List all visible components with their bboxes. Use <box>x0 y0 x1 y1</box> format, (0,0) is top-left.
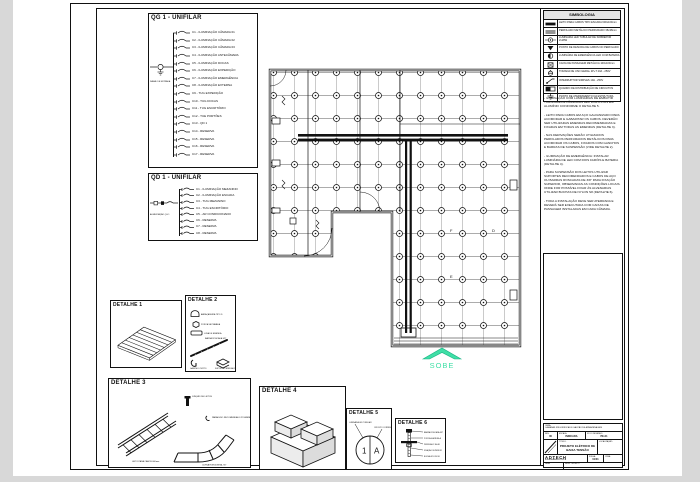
luminaire-icon <box>544 36 558 43</box>
note-paragraph: - LEITO PARA CABOS EM AÇO GALVANIZADO PA… <box>544 113 621 129</box>
qg1-single-line-diagram: QG 1 - UNIFILAR C1 - ILUMINAÇÃO CÂMARA 0… <box>148 13 258 168</box>
circuit-label: C4 - ILUMINAÇÃO ANTECÂMARA <box>192 54 239 57</box>
circuit-label: C5 - ILUMINAÇÃO DOCAS <box>192 62 229 65</box>
detail-3-title: DETALHE 3 <box>109 379 250 386</box>
breaker-row: C8 - ILUMINAÇÃO EXTERNA <box>173 82 239 90</box>
breaker-icon <box>173 44 191 51</box>
circuit-label: C1 - ILUMINAÇÃO MEZANINO <box>196 188 238 191</box>
breaker-row: C2 - ILUMINAÇÃO CÂMARA 02 <box>173 37 239 45</box>
note-paragraph: - NAS DERIVAÇÕES SERÃO UTILIZADOS PERFIL… <box>544 133 621 149</box>
breaker-icon <box>173 37 191 44</box>
detail-2-box: DETALHE 2 ABRAÇADEIRA TIPO D PORCA SEXTA… <box>185 295 236 372</box>
hardware-parts-icon: ABRAÇADEIRA TIPO D PORCA SEXTAVADA LUVA … <box>187 304 235 370</box>
breaker-icon <box>173 90 191 97</box>
curve-section-icon <box>174 435 234 462</box>
breaker-icon <box>179 211 195 217</box>
switch-icon <box>544 77 558 84</box>
breaker-icon <box>173 52 191 59</box>
feeder-label: ALIMENTAÇÃO QG 1 <box>150 214 178 216</box>
legend-table: SIMBOLOGIA LEITO PARA CABOS TIPO ESCADA … <box>543 10 621 102</box>
cable-ladder-isometric-icon: JUNÇÃO DE LEITOS PARAFUSO RECOMENDADO P/… <box>110 388 250 466</box>
part-label: LUVA DE EMENDA <box>204 332 222 335</box>
breaker-icon <box>179 218 195 224</box>
detail-label: CURVA HORIZONTAL 90° <box>202 464 227 467</box>
breaker-icon <box>173 113 191 120</box>
circuit-label: C2 - ILUMINAÇÃO CÂMARA 02 <box>192 39 235 42</box>
breaker-row: C4 - ILUMINAÇÃO ANTECÂMARA <box>173 52 239 60</box>
circuit-label: C13 - QD 1 <box>192 122 207 125</box>
legend-row: LUMINÁRIA LED TUBULAR DE SOBREPOR 2x18W <box>544 36 620 44</box>
detail-label: PORCA E ARRUELA <box>424 437 442 440</box>
breaker-icon <box>179 224 195 230</box>
luminaire-tag-detail-icon: LUMINÁRIA LED TUBULAR CIRCUITO CORRESPON… <box>348 417 392 469</box>
tray-panel-isometric-icon <box>111 311 181 367</box>
breaker-row: C17 - RESERVA <box>173 151 239 159</box>
logo-slash-icon <box>544 440 557 454</box>
general-notes: - ILUMINAÇÃO COM LUMINÁRIAS DE EMBUTIR T… <box>544 96 621 215</box>
room-tag: E <box>450 274 453 279</box>
breaker-row: C15 - RESERVA <box>173 135 239 143</box>
circuit-label: C12 - TUE PORTÕES <box>192 115 222 118</box>
qg1-title: QG 1 - UNIFILAR <box>149 14 257 21</box>
floor-plan: F D E SOBE <box>260 60 530 372</box>
sheet-title: PROJETO ELÉTRICO DE BAIXA TENSÃO <box>559 443 596 453</box>
pdf-viewer-canvas[interactable]: QG 1 - UNIFILAR C1 - ILUMINAÇÃO CÂMARA 0… <box>0 0 700 482</box>
feeder-icon <box>150 62 173 76</box>
hook-icon <box>206 416 210 421</box>
detail-label: JUNÇÃO DE LEITOS <box>192 395 213 398</box>
qg1-feeder: RAMAL DE ENTRADA <box>150 62 173 83</box>
breaker-icon <box>173 105 191 112</box>
company-logo-sub: ENGENHARIA ELÉTRICA <box>545 460 586 462</box>
part-label: SUPORTE PERFILADO <box>215 367 235 370</box>
legend-row: TOMADA DE USO GERAL 2P+T 20A - 250V <box>544 69 620 77</box>
qd1-single-line-diagram: QD 1 - UNIFILAR C1 - ILUMINAÇÃO MEZANINO <box>148 173 258 241</box>
detail-label: LUMINÁRIA LED TUBULAR <box>349 421 372 424</box>
circuit-label: C11 - TUG ESCRITÓRIO <box>192 107 226 110</box>
detail-6-title: DETALHE 6 <box>396 419 445 426</box>
circuit-label: C14 - RESERVA <box>192 130 214 133</box>
breaker-icon <box>173 75 191 82</box>
circuit-label: C6 - RESERVA <box>196 219 217 222</box>
circuit-label: C5 - AR CONDICIONADO <box>196 213 231 216</box>
detail-5-box: DETALHE 5 LUMINÁRIA LED TUBULAR CIRCUITO… <box>346 408 392 470</box>
circuit-label: C7 - RESERVA <box>196 225 217 228</box>
panel-icon <box>544 86 558 93</box>
circuit-label: C16 - RESERVA <box>192 145 214 148</box>
note-paragraph: - ILUMINAÇÃO COM LUMINÁRIAS DE EMBUTIR T… <box>544 96 621 108</box>
legend-row: LEITO PARA CABOS TIPO ESCADA 600x100mm <box>544 20 620 28</box>
local-label: LOCALIZAÇÃO: <box>599 441 621 443</box>
breaker-icon <box>173 136 191 143</box>
breaker-row: C9 - TUG EXPEDIÇÃO <box>173 90 239 98</box>
circuit-label: C9 - TUG EXPEDIÇÃO <box>192 92 223 95</box>
breaker-row: C12 - TUE PORTÕES <box>173 113 239 121</box>
perfilado-line-icon <box>544 28 558 35</box>
legend-row: QUADRO DE DISTRIBUIÇÃO DE CIRCUITOS <box>544 86 620 94</box>
detail-1-box: DETALHE 1 <box>110 300 182 368</box>
legend-title: SIMBOLOGIA <box>544 11 620 20</box>
resp-label: RESP. TÉCNICO <box>565 463 621 465</box>
plan-area <box>270 70 520 346</box>
circuit-label: C8 - RESERVA <box>196 232 217 235</box>
breaker-icon <box>173 128 191 135</box>
stair-arrow: SOBE <box>423 348 461 370</box>
breaker-row: C10 - TUG DOCAS <box>173 97 239 105</box>
breaker-icon <box>173 29 191 36</box>
breaker-icon <box>173 98 191 105</box>
circuit-label: C17 - RESERVA <box>192 153 214 156</box>
emergency-luminaire-icon <box>544 53 558 60</box>
crea-label: CREA <box>605 456 621 458</box>
outlet-icon <box>544 69 558 76</box>
breaker-icon <box>179 192 195 198</box>
right-column-divider <box>540 8 541 466</box>
detail-label: CIRCUITO CORRESPONDENTE <box>374 427 392 429</box>
circuit-label: C3 - TUG MEZANINO <box>196 200 225 203</box>
feeder-label: RAMAL DE ENTRADA <box>150 81 173 83</box>
cable-tray-line-icon <box>544 20 558 27</box>
detail-6-box: DETALHE 6 BARRA ROSCADA 3/8" PORCA E ARR… <box>395 418 446 463</box>
detail-5-title: DETALHE 5 <box>347 409 391 416</box>
note-paragraph: - PARA SUSPENSÃO DOS LEITOS UTILIZAR SUP… <box>544 170 621 194</box>
qd1-feeder: ALIMENTAÇÃO QG 1 <box>150 196 178 216</box>
detail-4-title: DETALHE 4 <box>260 387 345 394</box>
legend-row: LUMINÁRIA DE EMERGÊNCIA LED COM BATERIA <box>544 53 620 61</box>
detail-4-box: DETALHE 4 <box>259 386 346 470</box>
qd1-title: QD 1 - UNIFILAR <box>149 174 257 181</box>
legend-row: INTERRUPTOR SIMPLES 10A - 250V <box>544 77 620 85</box>
breaker-row: C14 - RESERVA <box>173 128 239 136</box>
circuit-label: C7 - ILUMINAÇÃO EMERGÊNCIA <box>192 77 238 80</box>
type-mark: A <box>374 447 380 456</box>
escala-value: INDICADA <box>559 435 584 438</box>
rev-value: 00 <box>545 435 556 438</box>
detail-label: PERFILADO 38x38 <box>424 443 440 446</box>
room-tag: D <box>492 228 495 233</box>
breaker-icon <box>179 186 195 192</box>
breaker-row: C8 - RESERVA <box>179 230 238 236</box>
circuit-label: C3 - ILUMINAÇÃO CÂMARA 03 <box>192 46 235 49</box>
breaker-icon <box>173 67 191 74</box>
breaker-icon <box>173 143 191 150</box>
folha-value: 01/01 <box>589 458 602 461</box>
part-label: GANCHO CURTO <box>190 367 207 370</box>
note-paragraph: - ILUMINAÇÃO DE EMERGÊNCIA: INSTALAR LUM… <box>544 154 621 166</box>
data-label: DATA <box>545 463 562 465</box>
sobe-arrow-icon <box>423 348 461 359</box>
detail-3-box: DETALHE 3 <box>108 378 251 468</box>
circuit-mark: 1 <box>362 447 367 456</box>
circuit-label: C10 - TUG DOCAS <box>192 100 218 103</box>
circuit-label: C15 - RESERVA <box>192 138 214 141</box>
breaker-row: C13 - QD 1 <box>173 120 239 128</box>
qd1-circuit-list: C1 - ILUMINAÇÃO MEZANINO C2 - ILUMINAÇÃO… <box>179 186 238 236</box>
breaker-row: C11 - TUG ESCRITÓRIO <box>173 105 239 113</box>
breaker-row: C3 - ILUMINAÇÃO CÂMARA 03 <box>173 44 239 52</box>
part-label: PORCA SEXTAVADA <box>201 323 221 326</box>
sobe-label: SOBE <box>430 361 455 370</box>
detail-label: LEITO PARA CABOS 600mm <box>132 460 160 463</box>
legend-row: PONTO DE DESCIDA DE CABOS NO PERFILADO <box>544 45 620 53</box>
breaker-icon <box>173 82 191 89</box>
breaker-row: C1 - ILUMINAÇÃO CÂMARA 01 <box>173 29 239 37</box>
junction-box-icon <box>544 61 558 68</box>
breaker-row: C6 - ILUMINAÇÃO EXPEDIÇÃO <box>173 67 239 75</box>
obra-value: CÂMARAS FRIGORÍFICAS E GALPÃO DE ARMAZEN… <box>545 427 621 429</box>
legend-row: CAIXA DE PASSAGEM METÁLICA 100x100mm <box>544 61 620 69</box>
desenho-value: PE-01 <box>587 435 621 438</box>
detail-label: BARRA ROSCADA 3/8" <box>424 431 443 434</box>
qg1-circuit-list: C1 - ILUMINAÇÃO CÂMARA 01 C2 - ILUMINAÇÃ… <box>173 29 239 158</box>
fastener-icon <box>185 396 191 406</box>
detail-label: BUCHA NYLON S8 <box>424 455 440 458</box>
note-paragraph: - TODA A INSTALAÇÃO DEVE SER ATERRADA E … <box>544 199 621 211</box>
part-label: BARRA ROSCADA 3/8" <box>205 337 226 340</box>
circuit-label: C4 - TUG ESCRITÓRIO <box>196 207 228 210</box>
circuit-label: C1 - ILUMINAÇÃO CÂMARA 01 <box>192 31 235 34</box>
part-label: ABRAÇADEIRA TIPO D <box>201 313 223 316</box>
breaker-icon <box>179 199 195 205</box>
breaker-icon <box>173 60 191 67</box>
breaker-row: C7 - ILUMINAÇÃO EMERGÊNCIA <box>173 75 239 83</box>
detail-label: PARAFUSO RECOMENDADO P/ EMENDA <box>212 416 250 419</box>
threaded-rod-detail-icon: BARRA ROSCADA 3/8" PORCA E ARRUELA PERFI… <box>397 426 445 463</box>
detail-1-title: DETALHE 1 <box>111 301 181 308</box>
emergency-luminaire-isometric-icon <box>261 397 345 469</box>
circuit-label: C8 - ILUMINAÇÃO EXTERNA <box>192 84 232 87</box>
detail-2-title: DETALHE 2 <box>186 296 235 303</box>
breaker-icon <box>173 120 191 127</box>
detail-label: FIXAÇÃO SUPERIOR <box>424 449 442 452</box>
breaker-icon <box>179 230 195 236</box>
breaker-row: C5 - ILUMINAÇÃO DOCAS <box>173 59 239 67</box>
revisions-box <box>543 253 623 420</box>
breaker-row: C16 - RESERVA <box>173 143 239 151</box>
circuit-label: C6 - ILUMINAÇÃO EXPEDIÇÃO <box>192 69 236 72</box>
breaker-icon <box>179 205 195 211</box>
title-block: OBRA: CÂMARAS FRIGORÍFICAS E GALPÃO DE A… <box>543 423 623 468</box>
circuit-label: C2 - ILUMINAÇÃO ESCADA <box>196 194 234 197</box>
drop-point-icon <box>544 45 558 52</box>
feeder-icon <box>150 199 178 209</box>
breaker-icon <box>173 151 191 158</box>
